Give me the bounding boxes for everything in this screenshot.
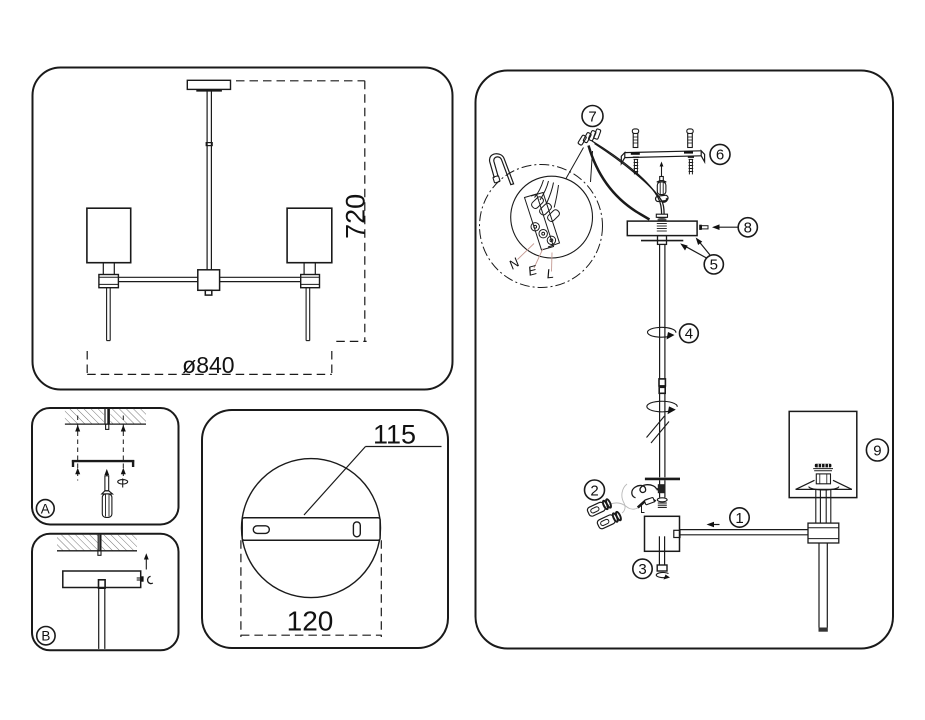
svg-text:5: 5 xyxy=(710,257,718,274)
svg-text:B: B xyxy=(41,629,50,644)
svg-text:2: 2 xyxy=(590,482,598,499)
svg-text:6: 6 xyxy=(716,147,724,164)
svg-text:E: E xyxy=(526,262,539,279)
svg-text:9: 9 xyxy=(873,443,881,460)
svg-text:8: 8 xyxy=(744,220,752,237)
svg-text:4: 4 xyxy=(685,326,693,343)
svg-text:115: 115 xyxy=(373,420,416,450)
svg-text:L: L xyxy=(546,266,555,282)
svg-text:3: 3 xyxy=(638,561,646,578)
svg-text:720: 720 xyxy=(341,194,371,239)
svg-text:1: 1 xyxy=(735,510,743,527)
svg-text:ø840: ø840 xyxy=(182,352,234,378)
svg-text:120: 120 xyxy=(287,606,334,637)
svg-text:A: A xyxy=(41,501,50,516)
svg-text:7: 7 xyxy=(588,108,596,125)
